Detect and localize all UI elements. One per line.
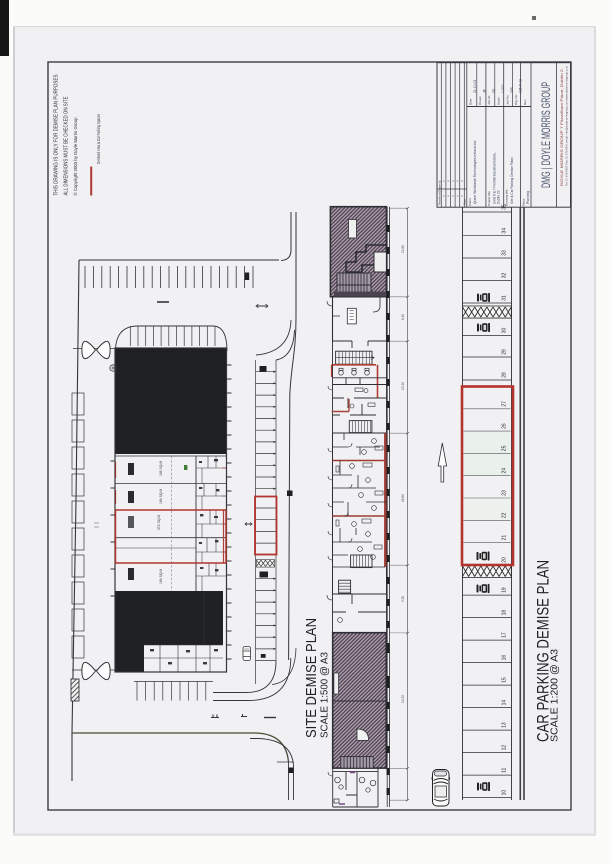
svg-text:372 SQ.M: 372 SQ.M <box>157 515 161 530</box>
svg-text:Rev.: Rev. <box>523 99 527 105</box>
svg-text:Drawn: Drawn <box>478 96 482 105</box>
svg-text:26: 26 <box>502 423 508 429</box>
svg-text:29: 29 <box>502 349 508 355</box>
svg-text:Site & Car Parking Demise Plan: Site & Car Parking Demise Plans <box>510 157 514 204</box>
svg-text:19.20: 19.20 <box>401 695 405 703</box>
svg-text:Job No.: Job No. <box>506 94 510 105</box>
svg-text:31: 31 <box>502 295 508 301</box>
svg-text:186 SQ.M: 186 SQ.M <box>159 461 163 476</box>
svg-text:ALL DIMENSIONS MUST BE CHECKED: ALL DIMENSIONS MUST BE CHECKED ON SITE <box>64 96 70 195</box>
svg-text:SITE DEMISE PLAN: SITE DEMISE PLAN <box>303 618 320 738</box>
svg-text:Date: Date <box>463 199 467 205</box>
svg-text:24: 24 <box>502 468 508 474</box>
svg-text:186 SQ.M: 186 SQ.M <box>159 489 163 504</box>
svg-text:22: 22 <box>502 512 508 518</box>
svg-text:Date: Date <box>469 98 473 105</box>
svg-text:Revisions/Drawn by: Revisions/Drawn by <box>438 180 442 205</box>
svg-text:14: 14 <box>502 700 508 706</box>
svg-text:20: 20 <box>502 557 508 563</box>
svg-text:19: 19 <box>502 587 508 593</box>
svg-text:23: 23 <box>502 490 508 496</box>
svg-text:25: 25 <box>502 445 508 451</box>
svg-text:33: 33 <box>502 250 508 256</box>
svg-text:17: 17 <box>502 632 508 638</box>
svg-text:21: 21 <box>502 535 508 541</box>
svg-text:© Copyright 2003 by Doyle Morr: © Copyright 2003 by Doyle Morris Group <box>72 117 78 195</box>
svg-text:Planning: Planning <box>526 191 530 204</box>
svg-text:186 SQ.M: 186 SQ.M <box>159 569 163 584</box>
svg-text:30: 30 <box>502 328 508 334</box>
svg-text:11: 11 <box>502 767 508 772</box>
svg-text:13: 13 <box>502 722 508 728</box>
svg-text:THIS DRAWING IS ONLY FOR DEMIS: THIS DRAWING IS ONLY FOR DEMISE PLAN PUR… <box>54 74 60 195</box>
svg-text:18: 18 <box>502 610 508 616</box>
svg-text:DOYLE MORRIS GROUP 7 Fitzwilli: DOYLE MORRIS GROUP 7 Fitzwilliam Place, … <box>560 68 564 186</box>
svg-text:16: 16 <box>502 655 508 661</box>
svg-text:Project title: Project title <box>487 191 491 206</box>
svg-text:Drawing title: Drawing title <box>505 189 509 206</box>
svg-text:15: 15 <box>502 677 508 683</box>
svg-text:Drg. No.: Drg. No. <box>514 94 518 105</box>
svg-text:9.50: 9.50 <box>401 596 405 602</box>
svg-text:Scale: Scale <box>497 97 501 105</box>
svg-text:085-P-02: 085-P-02 <box>519 79 523 93</box>
svg-text:Demised Area & Car Parking Spa: Demised Area & Car Parking Spaces <box>96 114 101 164</box>
svg-text:21.10.03: 21.10.03 <box>473 80 477 93</box>
svg-text:Job ref.: Job ref. <box>487 95 491 105</box>
svg-text:DMG | DOYLE MORRIS GROUP: DMG | DOYLE MORRIS GROUP <box>539 82 553 188</box>
svg-text:Client: Client <box>468 198 472 206</box>
svg-text:Tel: 01 676 0000 Fax: 01 676 0: Tel: 01 676 0000 Fax: 01 676 0001 email:… <box>564 65 568 186</box>
svg-text:27: 27 <box>502 401 508 407</box>
svg-text:SCALE 1:200 @ A3: SCALE 1:200 @ A3 <box>549 649 561 742</box>
svg-text:03: 03 <box>492 89 496 93</box>
svg-text:18.60: 18.60 <box>401 494 405 502</box>
svg-text:JF: JF <box>483 89 487 93</box>
svg-text:Maps: Maps <box>521 198 525 206</box>
svg-text:32: 32 <box>502 273 508 279</box>
svg-text:SCALE 1:500 @ A3: SCALE 1:500 @ A3 <box>319 652 331 738</box>
svg-text:13.10: 13.10 <box>401 382 405 390</box>
svg-text:Dublin 22: Dublin 22 <box>497 190 501 204</box>
svg-text:12: 12 <box>502 745 508 751</box>
svg-text:34: 34 <box>502 228 508 234</box>
svg-text:12.80: 12.80 <box>401 245 405 253</box>
svg-text:10: 10 <box>502 790 508 796</box>
svg-text:6.40: 6.40 <box>401 314 405 320</box>
svg-text:28: 28 <box>502 372 508 378</box>
svg-text:1:200: 1:200 <box>501 84 505 93</box>
svg-text:085: 085 <box>510 87 514 93</box>
svg-text:Quest Worldwide Technologies I: Quest Worldwide Technologies Ireland Ltd <box>473 140 477 204</box>
